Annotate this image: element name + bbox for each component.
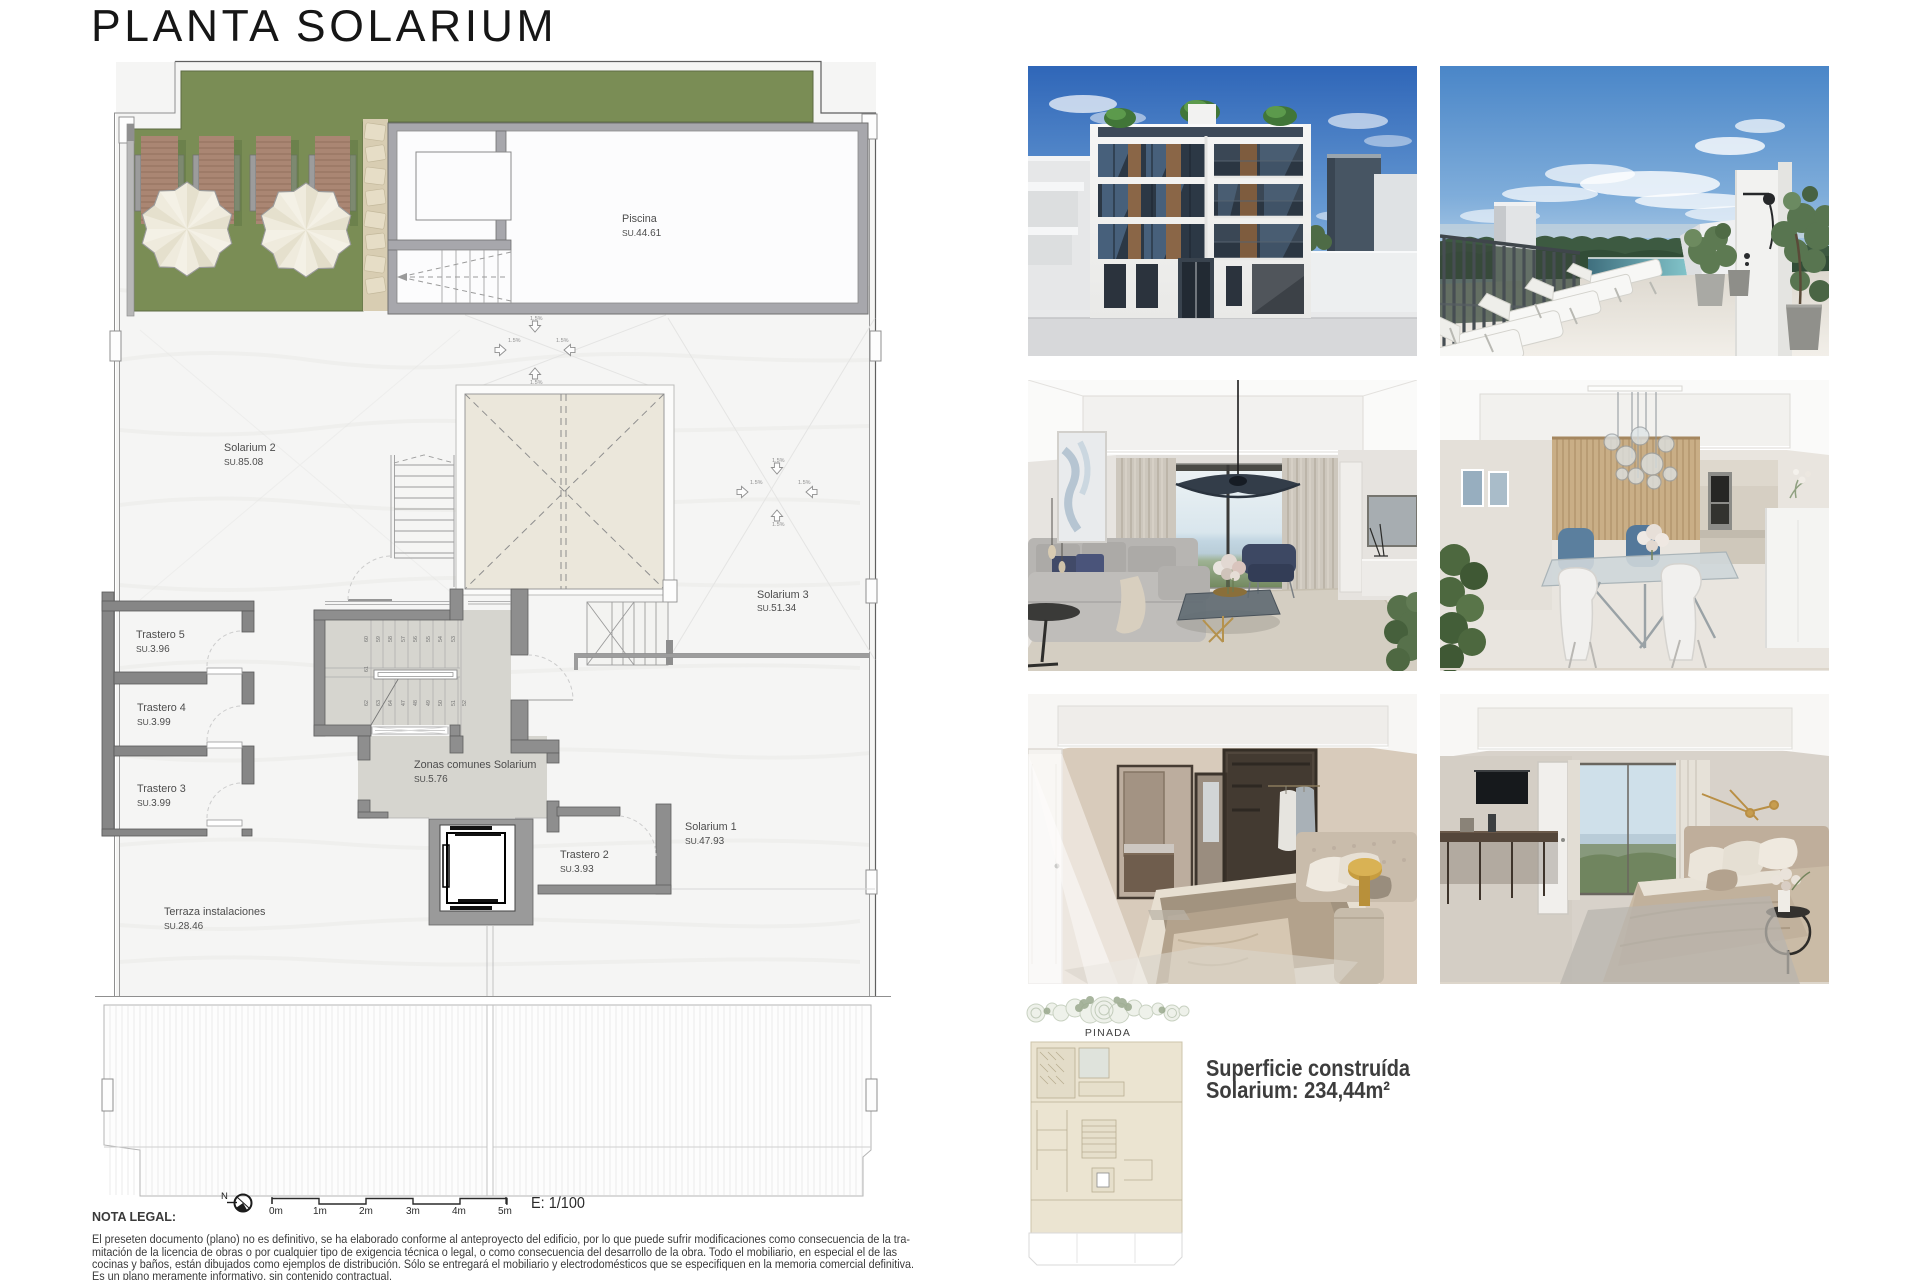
svg-text:Trastero 3: Trastero 3 xyxy=(137,783,186,795)
svg-text:PINADA: PINADA xyxy=(1085,1027,1131,1039)
svg-text:Trastero 5: Trastero 5 xyxy=(136,629,185,641)
svg-text:1.5%: 1.5% xyxy=(508,338,521,344)
svg-text:Solarium: 234,44m²: Solarium: 234,44m² xyxy=(1206,1077,1390,1103)
svg-text:SU.28.46: SU.28.46 xyxy=(164,921,204,932)
svg-text:59: 59 xyxy=(376,636,382,642)
svg-text:3m: 3m xyxy=(406,1206,420,1217)
svg-text:1.5%: 1.5% xyxy=(530,380,543,386)
svg-text:50: 50 xyxy=(438,700,444,706)
svg-text:Zonas comunes Solarium: Zonas comunes Solarium xyxy=(414,759,536,771)
svg-text:Solarium 2: Solarium 2 xyxy=(224,442,276,454)
svg-text:4m: 4m xyxy=(452,1206,466,1217)
svg-text:51: 51 xyxy=(451,700,457,706)
svg-text:1.5%: 1.5% xyxy=(772,458,785,464)
svg-text:Trastero 4: Trastero 4 xyxy=(137,702,186,714)
svg-text:SU.44.61: SU.44.61 xyxy=(622,228,662,239)
svg-text:Solarium 3: Solarium 3 xyxy=(757,589,809,601)
svg-text:54: 54 xyxy=(438,636,444,642)
svg-text:49: 49 xyxy=(426,700,432,706)
svg-text:47: 47 xyxy=(401,700,407,706)
svg-text:2m: 2m xyxy=(359,1206,373,1217)
svg-text:61: 61 xyxy=(364,666,370,672)
svg-text:0m: 0m xyxy=(269,1206,283,1217)
svg-text:63: 63 xyxy=(376,700,382,706)
svg-text:56: 56 xyxy=(413,636,419,642)
svg-text:1m: 1m xyxy=(313,1206,327,1217)
svg-text:53: 53 xyxy=(451,636,457,642)
svg-text:SU.3.96: SU.3.96 xyxy=(136,644,170,655)
svg-text:Es un plano meramente informat: Es un plano meramente informativo, sin c… xyxy=(92,1269,392,1280)
svg-text:52: 52 xyxy=(462,700,468,706)
svg-text:1.5%: 1.5% xyxy=(798,480,811,486)
svg-text:48: 48 xyxy=(413,700,419,706)
svg-text:Terraza instalaciones: Terraza instalaciones xyxy=(164,906,266,918)
svg-text:Trastero 2: Trastero 2 xyxy=(560,849,609,861)
svg-text:SU.47.93: SU.47.93 xyxy=(685,836,725,847)
svg-text:N: N xyxy=(221,1191,228,1202)
svg-text:57: 57 xyxy=(401,636,407,642)
svg-text:60: 60 xyxy=(364,636,370,642)
svg-text:5m: 5m xyxy=(498,1206,512,1217)
svg-text:SU.51.34: SU.51.34 xyxy=(757,603,797,614)
svg-text:SU.3.99: SU.3.99 xyxy=(137,717,171,728)
svg-text:SU.85.08: SU.85.08 xyxy=(224,457,264,468)
svg-text:1.5%: 1.5% xyxy=(556,338,569,344)
svg-text:El preseten documento (plano): El preseten documento (plano) no es defi… xyxy=(92,1232,910,1246)
svg-text:64: 64 xyxy=(388,700,394,706)
svg-text:55: 55 xyxy=(426,636,432,642)
svg-text:62: 62 xyxy=(364,700,370,706)
svg-text:58: 58 xyxy=(388,636,394,642)
svg-text:SU.3.99: SU.3.99 xyxy=(137,798,171,809)
svg-text:Piscina: Piscina xyxy=(622,213,657,225)
svg-text:NOTA LEGAL:: NOTA LEGAL: xyxy=(92,1210,176,1224)
svg-text:Solarium 1: Solarium 1 xyxy=(685,821,737,833)
svg-text:SU.3.93: SU.3.93 xyxy=(560,864,594,875)
svg-text:SU.5.76: SU.5.76 xyxy=(414,774,448,785)
svg-text:E: 1/100: E: 1/100 xyxy=(531,1195,585,1212)
svg-text:1.5%: 1.5% xyxy=(530,316,543,322)
svg-text:1.5%: 1.5% xyxy=(750,480,763,486)
svg-text:PLANTA SOLARIUM: PLANTA SOLARIUM xyxy=(91,2,557,51)
svg-text:1.5%: 1.5% xyxy=(772,522,785,528)
